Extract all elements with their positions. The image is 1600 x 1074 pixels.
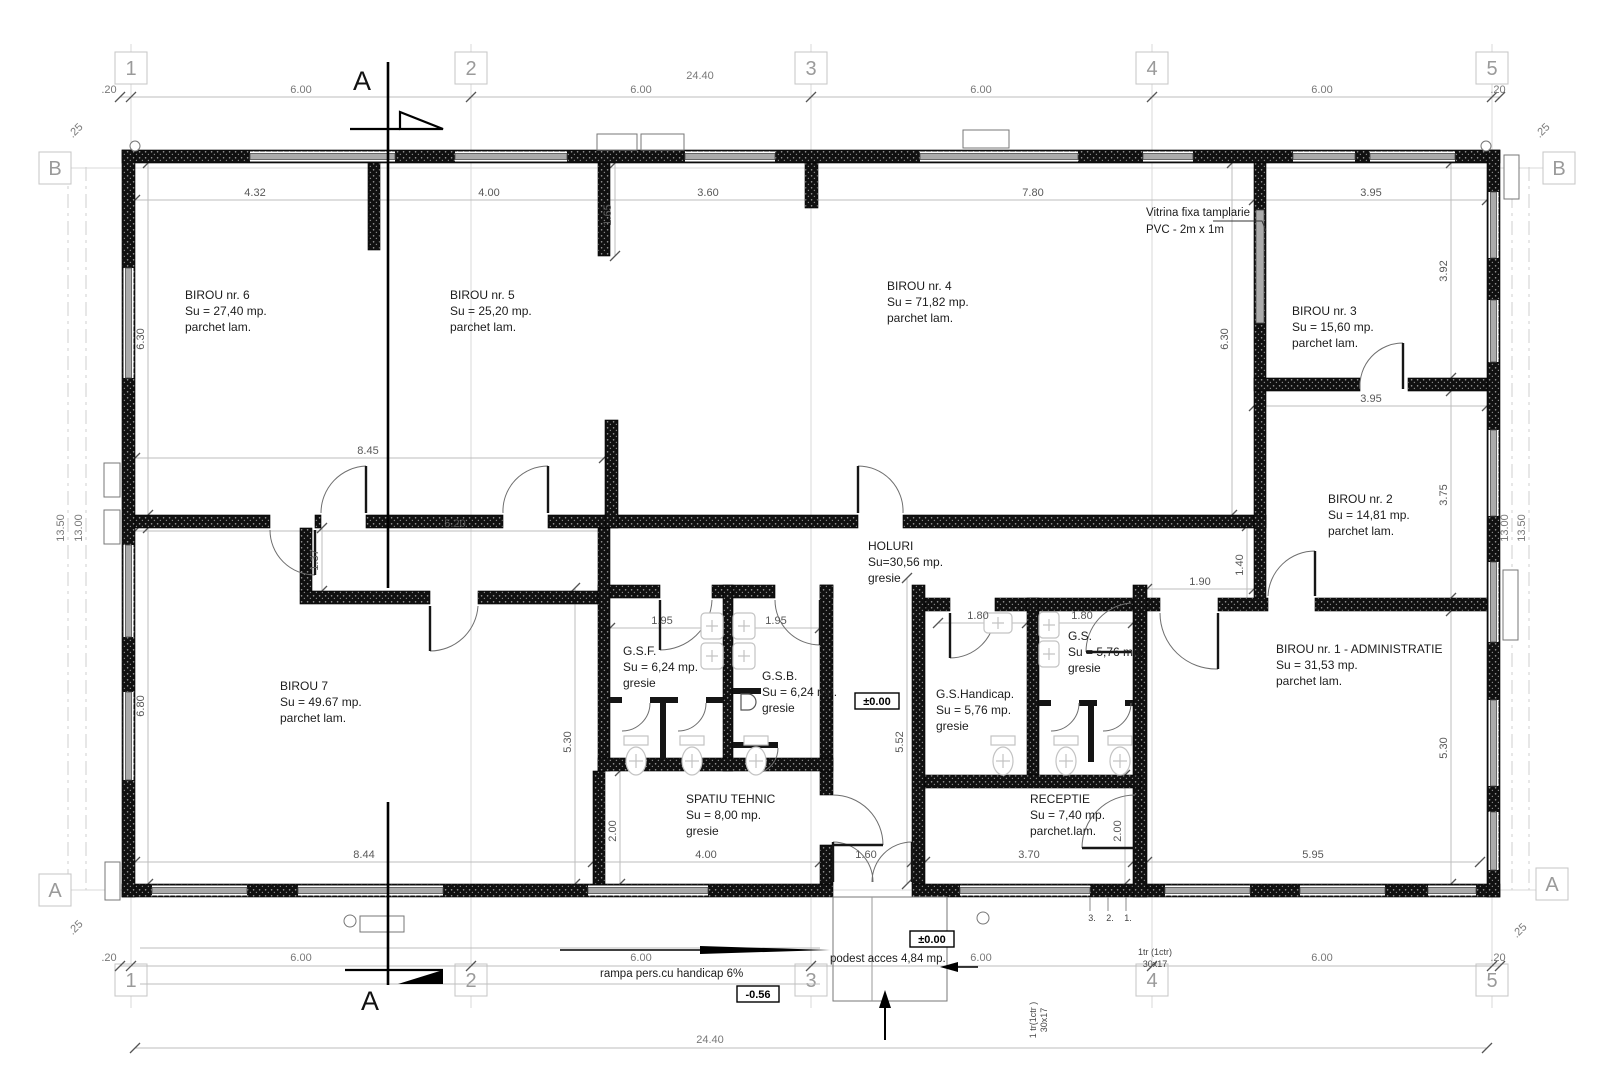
dim-label: 3.70 [1018, 849, 1039, 861]
room-label-birou4: BIROU nr. 4 Su = 71,82 mp. parchet lam. [887, 279, 969, 325]
room-area: Su = 15,60 mp. [1292, 320, 1374, 334]
room-floor: gresie [1068, 661, 1101, 675]
dim-label: 6.00 [970, 84, 991, 96]
dim-label: 6.30 [135, 328, 147, 349]
dim-label: 13.50 [55, 514, 67, 542]
ramp-note: rampa pers.cu handicap 6% [600, 968, 743, 980]
vitrina-note-line2: PVC - 2m x 1m [1146, 224, 1224, 236]
room-label-holuri: HOLURI Su=30,56 mp. gresie [868, 539, 943, 585]
room-floor: parchet.lam. [1030, 824, 1096, 838]
room-label-birou3: BIROU nr. 3 Su = 15,60 mp. parchet lam. [1292, 304, 1374, 350]
dim-label: 3.95 [1360, 393, 1381, 405]
room-floor: parchet lam. [280, 711, 346, 725]
room-floor: parchet lam. [1276, 674, 1342, 688]
room-name: G.S.F. [623, 644, 656, 658]
grid-ax1-bottom: 1 [125, 970, 136, 992]
room-area: Su = 6,24 mp. [762, 685, 837, 699]
dim-label: 1.90 [1189, 576, 1210, 588]
dim-label: .20 [1490, 84, 1505, 96]
room-name: SPATIU TEHNIC [686, 792, 776, 806]
urinal-icon [741, 694, 756, 710]
level-entry: ±0.00 [918, 934, 945, 946]
floor-plan-page: 1 2 3 4 5 1 2 3 4 5 B A B A [0, 0, 1600, 1074]
room-floor: parchet lam. [1328, 524, 1394, 538]
dim-label: 13.00 [1499, 514, 1511, 542]
room-name: RECEPTIE [1030, 792, 1090, 806]
floor-plan-drawing: 1 2 3 4 5 1 2 3 4 5 B A B A [0, 0, 1600, 1074]
toilet-icons [624, 736, 1132, 775]
dim-label: 1.37 [309, 549, 321, 570]
step-number: 2. [1106, 913, 1114, 923]
room-label-spatiu-tehnic: SPATIU TEHNIC Su = 8,00 mp. gresie [686, 792, 776, 838]
exterior-steps [1090, 897, 1126, 911]
dim-label: 6.30 [1219, 328, 1231, 349]
dim-label: 8.45 [357, 445, 378, 457]
dim-label: 1.80 [967, 610, 988, 622]
dim-label: 2.00 [607, 820, 619, 841]
room-label-gs-handicap: G.S.Handicap. Su = 5,76 mp. gresie [936, 687, 1014, 733]
grid-ax1-top: 1 [125, 58, 136, 80]
grid-ax4-bottom: 4 [1146, 970, 1157, 992]
dim-label: 7.80 [1022, 187, 1043, 199]
grid-axA-left: A [48, 880, 62, 902]
room-floor: gresie [623, 676, 656, 690]
grid-ax3-bottom: 3 [805, 970, 816, 992]
room-floor: parchet lam. [887, 311, 953, 325]
dim-label: 5.30 [1438, 737, 1450, 758]
room-area: Su = 5,76 mp. [1068, 645, 1143, 659]
room-area: Su = 49.67 mp. [280, 695, 362, 709]
room-name: G.S.Handicap. [936, 687, 1014, 701]
grid-axB-left: B [48, 158, 61, 180]
room-name: BIROU nr. 6 [185, 288, 250, 302]
room-label-birou7: BIROU 7 Su = 49.67 mp. parchet lam. [280, 679, 362, 725]
annotations: Vitrina fixa tamplarie PVC - 2m x 1m ±0.… [600, 207, 1266, 1038]
room-label-receptie: RECEPTIE Su = 7,40 mp. parchet.lam. [1030, 792, 1105, 838]
room-floor: gresie [762, 701, 795, 715]
room-floor: gresie [936, 719, 969, 733]
grid-ax4-top: 4 [1146, 58, 1157, 80]
room-area: Su = 6,24 mp. [623, 660, 698, 674]
room-label-birou5: BIROU nr. 5 Su = 25,20 mp. parchet lam. [450, 288, 532, 334]
podest-note: podest acces 4,84 mp. [830, 953, 946, 965]
room-label-birou6: BIROU nr. 6 Su = 27,40 mp. parchet lam. [185, 288, 267, 334]
level-ramp: -0.56 [745, 989, 770, 1001]
dim-label: 1.40 [1234, 554, 1246, 575]
room-name: G.S. [1068, 629, 1092, 643]
dim-label: 3.92 [1438, 260, 1450, 281]
room-name: HOLURI [868, 539, 913, 553]
step-number: 3. [1088, 913, 1096, 923]
dim-label: 3.75 [1438, 484, 1450, 505]
dim-label: 4.32 [244, 187, 265, 199]
grid-ax5-top: 5 [1486, 58, 1497, 80]
room-floor: parchet lam. [450, 320, 516, 334]
dim-label: .20 [101, 952, 116, 964]
grid-ax3-top: 3 [805, 58, 816, 80]
dim-label: 1.65 [602, 204, 614, 225]
dim-label: 6.00 [970, 952, 991, 964]
stair-note-line1: 1tr (1ctr) [1138, 947, 1172, 957]
level-hall: ±0.00 [863, 696, 890, 708]
room-name: BIROU nr. 1 - ADMINISTRATIE [1276, 642, 1442, 656]
dim-label: .20 [101, 84, 116, 96]
section-letter-bottom: A [361, 986, 379, 1016]
dim-label: 3.60 [697, 187, 718, 199]
room-floor: gresie [686, 824, 719, 838]
dim-label: 5.30 [562, 731, 574, 752]
dim-label: 5.52 [894, 731, 906, 752]
dim-label: .25 [66, 918, 85, 937]
grid-axA-right: A [1545, 874, 1559, 896]
dim-label: 5.20 [444, 518, 465, 530]
room-area: Su = 25,20 mp. [450, 304, 532, 318]
room-area: Su = 31,53 mp. [1276, 658, 1358, 672]
dimension-lines [115, 92, 1505, 1053]
dim-label: 6.00 [1311, 952, 1332, 964]
dim-label: 6.00 [290, 952, 311, 964]
dim-label: 13.50 [1516, 514, 1528, 542]
room-area: Su = 8,00 mp. [686, 808, 761, 822]
dim-label: .25 [66, 121, 85, 140]
doors [270, 343, 1403, 882]
dim-label: 13.00 [73, 514, 85, 542]
room-name: BIROU nr. 4 [887, 279, 952, 293]
vitrina-fixed-window [1256, 210, 1264, 323]
room-floor: gresie [868, 571, 901, 585]
room-label-gsf: G.S.F. Su = 6,24 mp. gresie [623, 644, 698, 690]
section-letter-top: A [353, 66, 371, 96]
dim-label: 5.95 [1302, 849, 1323, 861]
dim-label: 3.95 [1360, 187, 1381, 199]
podest-outline [833, 897, 947, 1001]
dim-label: .25 [1510, 921, 1529, 940]
dim-label: 2.00 [1112, 820, 1124, 841]
room-label-gs: G.S. Su = 5,76 mp. gresie [1068, 629, 1143, 675]
room-area: Su = 71,82 mp. [887, 295, 969, 309]
room-name: G.S.B. [762, 669, 797, 683]
room-area: Su = 14,81 mp. [1328, 508, 1410, 522]
dim-label: .25 [1533, 121, 1552, 140]
dim-label: 1.95 [651, 615, 672, 627]
section-flag-bottom [398, 970, 443, 984]
room-name: BIROU nr. 5 [450, 288, 515, 302]
dim-label: 8.44 [353, 849, 374, 861]
room-name: BIROU nr. 2 [1328, 492, 1393, 506]
dim-label: 6.00 [290, 84, 311, 96]
stair-note-line2: 30x17 [1143, 959, 1168, 969]
room-area: Su = 5,76 mp. [936, 703, 1011, 717]
dim-label: 6.00 [630, 952, 651, 964]
dim-label: 6.00 [630, 84, 651, 96]
room-name: BIROU 7 [280, 679, 328, 693]
grid-ax2-bottom: 2 [465, 970, 476, 992]
grid-axB-right: B [1552, 158, 1565, 180]
dim-label: 4.00 [478, 187, 499, 199]
room-area: Su = 7,40 mp. [1030, 808, 1105, 822]
dim-label: 1.60 [855, 849, 876, 861]
room-label-birou2: BIROU nr. 2 Su = 14,81 mp. parchet lam. [1328, 492, 1410, 538]
dim-label: 4.00 [695, 849, 716, 861]
step-number: 1. [1124, 913, 1132, 923]
dim-label: 6.80 [135, 695, 147, 716]
dim-label: 1.80 [1071, 610, 1092, 622]
stair-note-vertical-line1: 1 tr(1ctr ) [1028, 1002, 1038, 1039]
dim-label: 24.40 [696, 1034, 724, 1046]
room-area: Su = 27,40 mp. [185, 304, 267, 318]
dim-label: .20 [1490, 952, 1505, 964]
room-floor: parchet lam. [1292, 336, 1358, 350]
grid-ax2-top: 2 [465, 58, 476, 80]
room-name: BIROU nr. 3 [1292, 304, 1357, 318]
section-flag-top [400, 112, 443, 129]
dim-label: 24.40 [686, 70, 714, 82]
stair-note-vertical-line2: 30x17 [1039, 1008, 1049, 1033]
dim-label: 6.00 [1311, 84, 1332, 96]
vitrina-note-line1: Vitrina fixa tamplarie [1146, 207, 1250, 219]
room-floor: parchet lam. [185, 320, 251, 334]
grid-ax5-bottom: 5 [1486, 970, 1497, 992]
section-marks: A A [345, 62, 443, 1016]
dim-label: 1.95 [765, 615, 786, 627]
room-label-birou1: BIROU nr. 1 - ADMINISTRATIE Su = 31,53 m… [1276, 642, 1442, 688]
room-area: Su=30,56 mp. [868, 555, 943, 569]
